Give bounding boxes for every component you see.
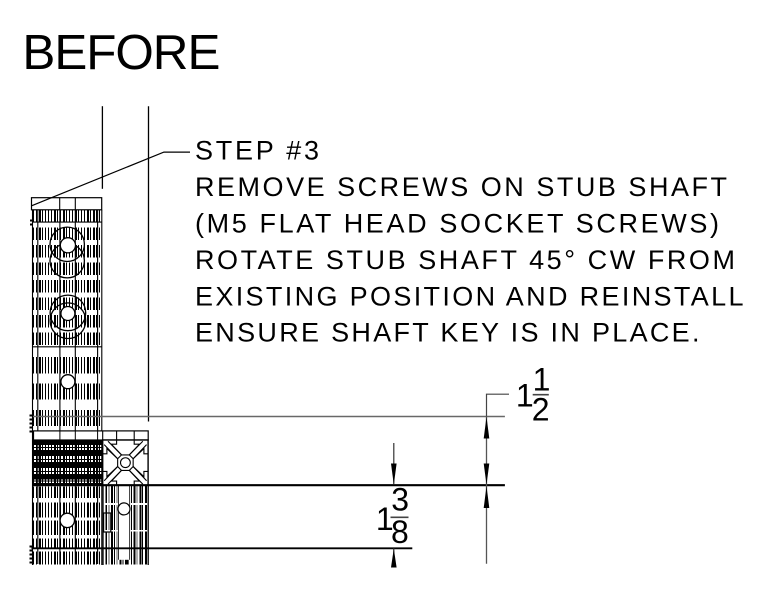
svg-text:(M5 FLAT HEAD SOCKET SCREWS): (M5 FLAT HEAD SOCKET SCREWS) <box>195 209 719 239</box>
svg-text:2: 2 <box>532 392 550 428</box>
svg-text:ENSURE SHAFT KEY IS IN PLACE.: ENSURE SHAFT KEY IS IN PLACE. <box>195 318 700 348</box>
svg-text:ROTATE STUB SHAFT 45° CW FROM: ROTATE STUB SHAFT 45° CW FROM <box>195 245 735 275</box>
svg-text:8: 8 <box>391 514 409 550</box>
svg-text:3: 3 <box>391 482 409 518</box>
svg-text:BEFORE: BEFORE <box>22 25 220 80</box>
svg-text:EXISTING POSITION AND REINSTAL: EXISTING POSITION AND REINSTALL <box>195 281 744 311</box>
